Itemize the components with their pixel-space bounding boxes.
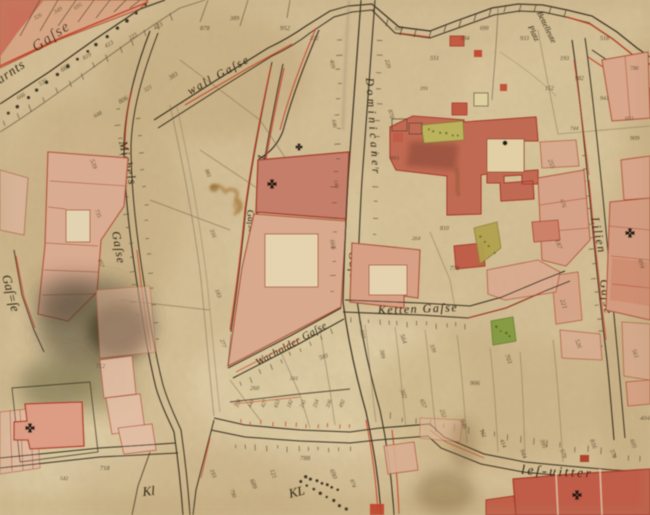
svg-text:193: 193 [560,56,569,62]
svg-text:542: 542 [60,475,69,482]
svg-text:264: 264 [412,235,421,242]
svg-text:906: 906 [470,380,481,387]
svg-text:631: 631 [395,26,404,32]
svg-text:152: 152 [545,86,554,92]
svg-text:718: 718 [100,465,110,472]
svg-text:810: 810 [440,226,449,232]
svg-text:982: 982 [575,76,584,82]
svg-text:941: 941 [600,95,609,102]
svg-text:389: 389 [229,16,239,22]
svg-text:646: 646 [330,119,338,129]
svg-text:332: 332 [309,36,319,42]
svg-text:260: 260 [250,386,259,392]
svg-text:878: 878 [200,25,210,32]
svg-text:551: 551 [430,56,439,62]
svg-text:699: 699 [480,26,489,32]
svg-text:933: 933 [520,36,529,42]
svg-text:146: 146 [332,179,340,189]
svg-text:561: 561 [290,376,299,382]
svg-text:993: 993 [390,156,399,162]
svg-text:384: 384 [459,35,469,42]
svg-text:788: 788 [300,455,311,462]
svg-text:952: 952 [280,25,291,32]
svg-text:Ketten Gaſse: Ketten Gaſse [377,300,459,317]
svg-text:391: 391 [419,86,429,92]
svg-text:603: 603 [625,116,634,122]
svg-text:Kl: Kl [141,483,156,499]
svg-text:786: 786 [630,66,639,72]
svg-text:518: 518 [600,36,609,42]
svg-text:909: 909 [630,135,640,142]
svg-text:744: 744 [570,125,579,132]
svg-text:778: 778 [450,266,459,272]
svg-text:712: 712 [96,364,105,370]
